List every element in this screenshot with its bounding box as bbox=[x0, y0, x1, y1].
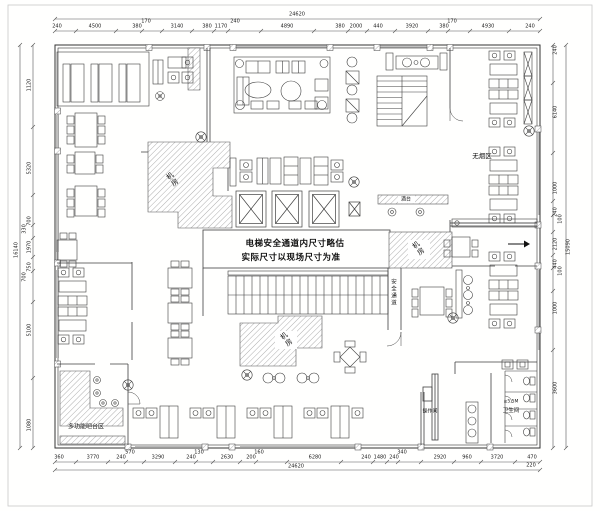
bottom-seating-row bbox=[133, 406, 363, 438]
dimension-label: 330 bbox=[23, 224, 28, 234]
dining-left-column bbox=[57, 113, 105, 267]
dimension-label: 6140 bbox=[554, 106, 559, 119]
dimension-label: 750 bbox=[28, 262, 33, 272]
corridor-note-line1: 电梯安全通道内尺寸略估 bbox=[245, 237, 344, 249]
room-label-safety-passage: 安全通道 bbox=[391, 279, 398, 307]
dimension-label: 240 bbox=[554, 45, 559, 55]
restroom-area-note: ≥5.5M bbox=[504, 400, 519, 405]
floor-plan-sheet: 电梯安全通道内尺寸略估 实际尺寸以现场尺寸为准 机房 机房 机房 无烟区 酒台 … bbox=[0, 0, 600, 511]
dimension-label: 240 bbox=[389, 456, 399, 461]
dimension-label: 1080 bbox=[28, 419, 33, 432]
dimension-label: 3920 bbox=[406, 25, 419, 30]
dimension-label: 1170 bbox=[215, 25, 228, 30]
overall-dimension-right: 15090 bbox=[567, 239, 572, 255]
dimension-label: 960 bbox=[462, 456, 472, 461]
entrance-arrow bbox=[508, 241, 530, 248]
room-label-bar-counter: 酒台 bbox=[401, 196, 411, 203]
dimension-label: 5320 bbox=[28, 162, 33, 175]
dimension-label: 4890 bbox=[281, 25, 294, 30]
dimension-label: 240 bbox=[52, 25, 62, 30]
dimension-label: 240 bbox=[186, 456, 196, 461]
dimension-label: 240 bbox=[525, 25, 535, 30]
dimension-label: 5100 bbox=[28, 324, 33, 337]
lobby-seating bbox=[230, 157, 343, 186]
dimension-label: 1970 bbox=[28, 241, 33, 254]
dimension-label: 700 bbox=[23, 272, 28, 282]
dimension-label: 4930 bbox=[482, 25, 495, 30]
secondary-staircase bbox=[377, 76, 427, 126]
dimension-label: 380 bbox=[132, 25, 142, 30]
dimension-label: 1000 bbox=[554, 302, 559, 315]
dimension-label: 170 bbox=[447, 20, 457, 25]
dimension-label: 170 bbox=[141, 20, 151, 25]
dimension-label: 2120 bbox=[554, 238, 559, 251]
dimension-label: 380 bbox=[439, 25, 449, 30]
overall-dimension-left: 16140 bbox=[15, 242, 20, 258]
dimension-label: 4500 bbox=[89, 25, 102, 30]
dimension-label: 470 bbox=[527, 456, 537, 461]
dimension-label: 440 bbox=[373, 25, 383, 30]
dimension-label: 3140 bbox=[171, 25, 184, 30]
dining-right-middle bbox=[412, 270, 473, 318]
dining-middle-column bbox=[168, 261, 192, 365]
dimension-label: 1480 bbox=[374, 456, 387, 461]
dimension-label: 700 bbox=[28, 216, 33, 226]
dimension-label: 6280 bbox=[309, 456, 322, 461]
booth-strip-top-mid bbox=[346, 57, 359, 123]
corridor-note-line2: 实际尺寸以现场尺寸为准 bbox=[241, 251, 340, 263]
overall-dimension-bottom: 24620 bbox=[288, 465, 304, 470]
restroom-fixtures bbox=[466, 360, 537, 443]
booth-top-right bbox=[386, 53, 447, 70]
dimension-label: 3600 bbox=[554, 382, 559, 395]
dimension-label: 340 bbox=[397, 451, 407, 456]
room-label-restroom: 卫生间 bbox=[503, 406, 520, 414]
dimension-label: 380 bbox=[335, 25, 345, 30]
grand-staircase bbox=[228, 271, 388, 314]
dimension-label: 3720 bbox=[491, 456, 504, 461]
booth-seating-top-left bbox=[57, 52, 193, 106]
dimension-label: 3290 bbox=[152, 456, 165, 461]
room-label-multifunction-bar-area: 多功能吧台区 bbox=[68, 422, 104, 431]
overall-dimension-top: 24620 bbox=[289, 13, 305, 18]
dimension-label: 2000 bbox=[350, 25, 363, 30]
room-label-no-smoking-area: 无烟区 bbox=[472, 150, 492, 160]
dimension-label: 380 bbox=[202, 25, 212, 30]
dimension-label: 2630 bbox=[221, 456, 234, 461]
right-corridor-furniture bbox=[444, 219, 537, 257]
dimension-label: 130 bbox=[194, 451, 204, 456]
dimension-label: 240 bbox=[116, 456, 126, 461]
elevator-shafts bbox=[236, 191, 360, 227]
room-label-operation-room: 操作间 bbox=[422, 408, 437, 415]
dimension-label: 2920 bbox=[434, 456, 447, 461]
booth-column-right bbox=[489, 51, 532, 328]
dimension-label: 1000 bbox=[554, 182, 559, 195]
dimension-label: 100 bbox=[559, 266, 564, 276]
dimension-label: 220 bbox=[526, 464, 536, 469]
dimension-label: 360 bbox=[54, 456, 64, 461]
booth-column-left bbox=[58, 268, 87, 344]
dimension-label: 3770 bbox=[87, 456, 100, 461]
dimension-label: 240 bbox=[361, 456, 371, 461]
dimension-label: 1120 bbox=[28, 79, 33, 92]
dimension-label: 160 bbox=[254, 451, 264, 456]
dimension-label: 570 bbox=[125, 451, 135, 456]
dimension-label: 240 bbox=[230, 20, 240, 25]
lounge-sofa-group bbox=[234, 57, 330, 113]
dimension-label: 100 bbox=[559, 214, 564, 224]
dimension-label: 200 bbox=[246, 456, 256, 461]
